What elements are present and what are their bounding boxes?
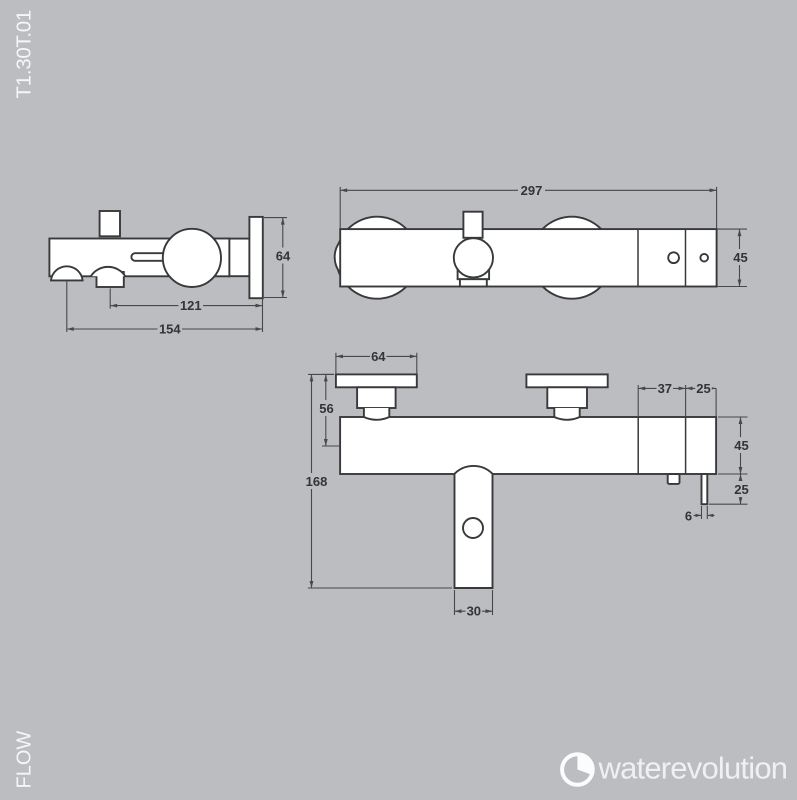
svg-text:6: 6 [685, 508, 692, 523]
svg-text:64: 64 [276, 248, 291, 263]
svg-text:30: 30 [467, 604, 481, 619]
svg-text:25: 25 [734, 482, 748, 497]
svg-text:297: 297 [521, 183, 543, 198]
svg-text:168: 168 [306, 474, 328, 489]
svg-text:45: 45 [734, 438, 748, 453]
svg-text:64: 64 [371, 349, 386, 364]
svg-text:121: 121 [180, 298, 202, 313]
svg-text:25: 25 [696, 381, 710, 396]
svg-text:154: 154 [159, 322, 181, 337]
svg-text:37: 37 [658, 381, 672, 396]
svg-text:FLOW: FLOW [14, 731, 36, 789]
svg-text:45: 45 [733, 250, 747, 265]
svg-text:56: 56 [319, 401, 333, 416]
svg-text:T1.30T.01: T1.30T.01 [12, 10, 35, 98]
svg-text:waterevolution: waterevolution [598, 751, 788, 786]
